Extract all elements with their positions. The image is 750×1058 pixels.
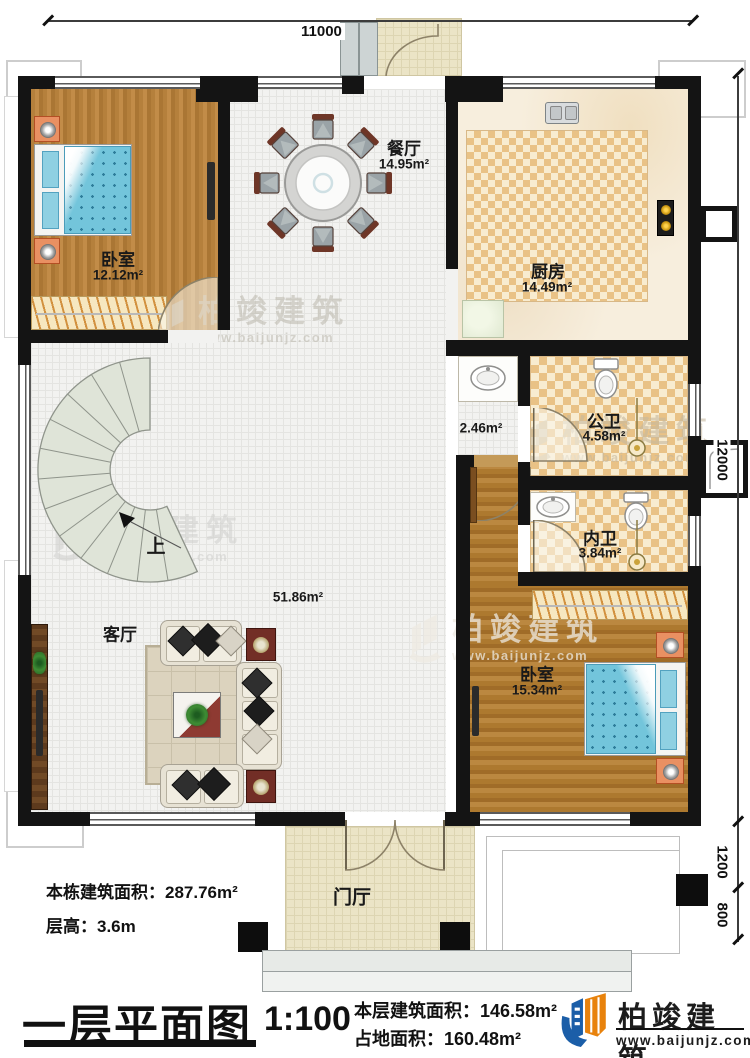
shower-icon	[626, 398, 648, 460]
wall-dining-kitchen	[446, 89, 458, 269]
foyer-double-door-swing-icon	[345, 818, 445, 874]
public-bath-door-swing-icon	[533, 408, 589, 464]
room-label-foyer: 门厅	[333, 883, 371, 910]
nightstand	[656, 758, 684, 784]
wall-bath-divider	[518, 476, 701, 490]
door-opening	[446, 269, 458, 340]
bed-pillow	[660, 712, 677, 750]
wall-pier	[342, 76, 364, 94]
brand-name: 柏竣建筑	[618, 994, 750, 1058]
side-entry-panel	[340, 22, 378, 76]
footer-ground-area: 占地面积：160.48m²	[354, 1025, 521, 1051]
tv-icon	[472, 686, 479, 736]
plant-icon	[33, 652, 46, 674]
door-opening	[518, 525, 530, 572]
wall-pier	[445, 76, 503, 102]
plan-scale: 1:100	[264, 1000, 351, 1039]
wall-kitchen-bottom	[446, 340, 701, 356]
annotation-building-area: 本栋建筑面积：287.76m²	[46, 878, 238, 903]
nightstand	[34, 238, 60, 264]
dining-table	[250, 110, 396, 256]
side-table	[246, 628, 276, 661]
wall-bath-left-mid	[518, 462, 530, 525]
room-area-kitchen: 14.49m²	[522, 280, 572, 295]
brand-divider	[616, 1028, 744, 1030]
dimension-line-top	[48, 20, 693, 22]
porch-outline-inner	[502, 850, 680, 954]
washbasin-icon	[534, 494, 572, 521]
window	[688, 516, 701, 566]
room-area-dining: 14.95m²	[379, 157, 429, 172]
wall-bedroom-br-left	[456, 455, 470, 826]
footer-floor-area: 本层建筑面积：146.58m²	[354, 997, 557, 1023]
door-opening	[168, 330, 218, 343]
wall-right	[688, 76, 701, 826]
bed-mattress	[586, 664, 656, 754]
floor-plan: 柏竣建筑www.baijunjz.com 柏竣建筑www.baijunjz.co…	[0, 0, 750, 1058]
window	[55, 76, 200, 89]
title-underline	[24, 1040, 256, 1047]
brand-website: www.baijunjz.com	[616, 1033, 750, 1048]
window	[90, 812, 255, 826]
spiral-staircase	[31, 352, 251, 587]
wardrobe	[31, 296, 167, 330]
stairs-up-label: 上	[146, 532, 165, 559]
dimension-line-right	[737, 76, 739, 942]
window	[503, 76, 655, 89]
side-entry-door-swing-icon	[380, 22, 440, 78]
kitchen-cabinet	[462, 300, 504, 338]
wall-inner-bath-bottom	[518, 572, 701, 586]
tv-icon	[207, 162, 215, 220]
column	[676, 874, 708, 906]
side-door-opening	[364, 76, 445, 89]
wardrobe	[532, 590, 688, 620]
wall-bedroom-dining	[218, 89, 230, 330]
washbasin-icon	[468, 362, 508, 394]
room-area-public-bath: 4.58m²	[583, 429, 626, 444]
door-opening	[518, 406, 530, 462]
nightstand	[656, 632, 684, 658]
bed-mattress	[64, 146, 131, 234]
bedroom-br-door-leaf	[470, 467, 477, 523]
entry-step	[262, 950, 632, 972]
plant-icon	[186, 704, 208, 726]
dimension-right-low: 800	[714, 899, 731, 930]
bedroom-tl-door-swing-icon	[158, 277, 218, 337]
dimension-right-mid: 1200	[714, 842, 731, 881]
kitchen-sink-icon	[545, 102, 579, 124]
window	[688, 384, 701, 436]
room-area-inner-bath: 3.84m²	[579, 546, 622, 561]
stove-icon	[657, 200, 674, 236]
dimension-top: 11000	[298, 23, 345, 40]
room-area-living: 51.86m²	[273, 590, 323, 605]
annotation-floor-height: 层高：3.6m	[46, 912, 136, 937]
bed-pillow	[660, 670, 677, 708]
window	[258, 76, 342, 89]
bed-pillow	[42, 192, 59, 229]
wall-vent-box	[701, 206, 737, 242]
column	[440, 922, 470, 952]
tv-icon	[36, 690, 43, 756]
toilet-icon	[592, 358, 620, 400]
room-area-corridor: 2.46m²	[460, 421, 503, 436]
window	[18, 365, 31, 575]
bed-pillow	[42, 151, 59, 188]
nightstand	[34, 116, 60, 142]
column	[238, 922, 268, 952]
dimension-right-main: 12000	[714, 436, 731, 484]
shower-icon	[626, 520, 648, 572]
brand-logo-icon	[556, 988, 612, 1050]
side-table	[246, 770, 276, 803]
wall-pier	[196, 76, 258, 102]
room-area-bedroom-br: 15.34m²	[512, 683, 562, 698]
window	[480, 812, 630, 826]
wall-public-bath-left	[518, 356, 530, 406]
wall-bedroom-bottom	[31, 330, 168, 343]
room-area-bedroom-tl: 12.12m²	[93, 268, 143, 283]
door-opening	[474, 455, 518, 467]
room-label-living: 客厅	[103, 621, 137, 646]
